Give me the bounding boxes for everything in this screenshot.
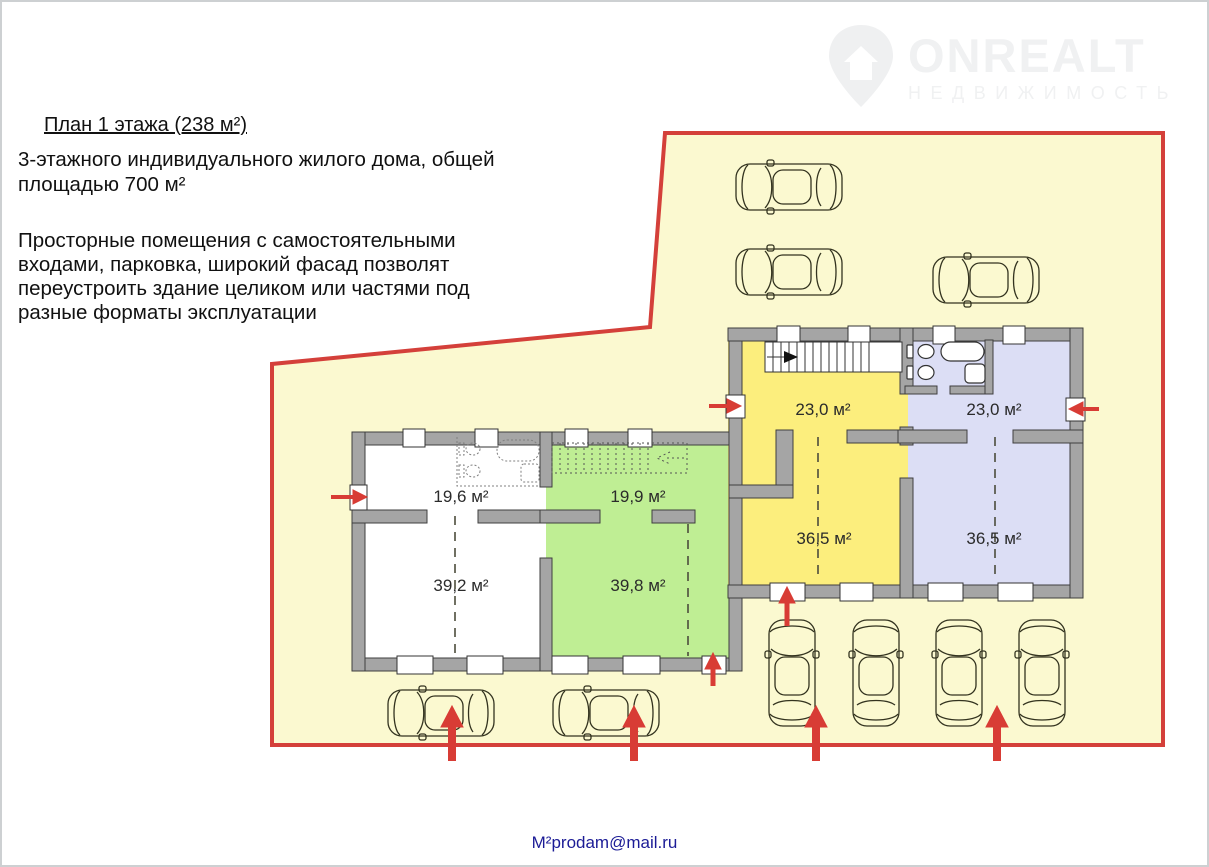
toilet-icon <box>918 345 934 359</box>
shower-icon <box>965 364 985 383</box>
staircase-icon <box>765 342 902 372</box>
contact-email: М²prodam@mail.ru <box>0 833 1209 853</box>
room-area-label: 39,2 м² <box>433 576 488 595</box>
page-title: План 1 этажа (238 м²) <box>44 114 247 137</box>
page-description: Просторные помещения с самостоятельными … <box>18 229 638 325</box>
room-area-label: 23,0 м² <box>966 400 1021 419</box>
room-area-label: 36,5 м² <box>966 529 1021 548</box>
page-subtitle: 3-этажного индивидуального жилого дома, … <box>18 147 638 197</box>
bathtub-icon <box>941 342 984 361</box>
room-area-label: 19,9 м² <box>610 487 665 506</box>
section-white <box>352 432 546 671</box>
toilet-icon <box>907 345 913 358</box>
room-area-label: 36,5 м² <box>796 529 851 548</box>
room-area-label: 19,6 м² <box>433 487 488 506</box>
section-green <box>546 432 742 671</box>
toilet-icon <box>918 366 934 380</box>
room-area-label: 39,8 м² <box>610 576 665 595</box>
room-area-label: 23,0 м² <box>795 400 850 419</box>
toilet-icon <box>907 366 913 379</box>
